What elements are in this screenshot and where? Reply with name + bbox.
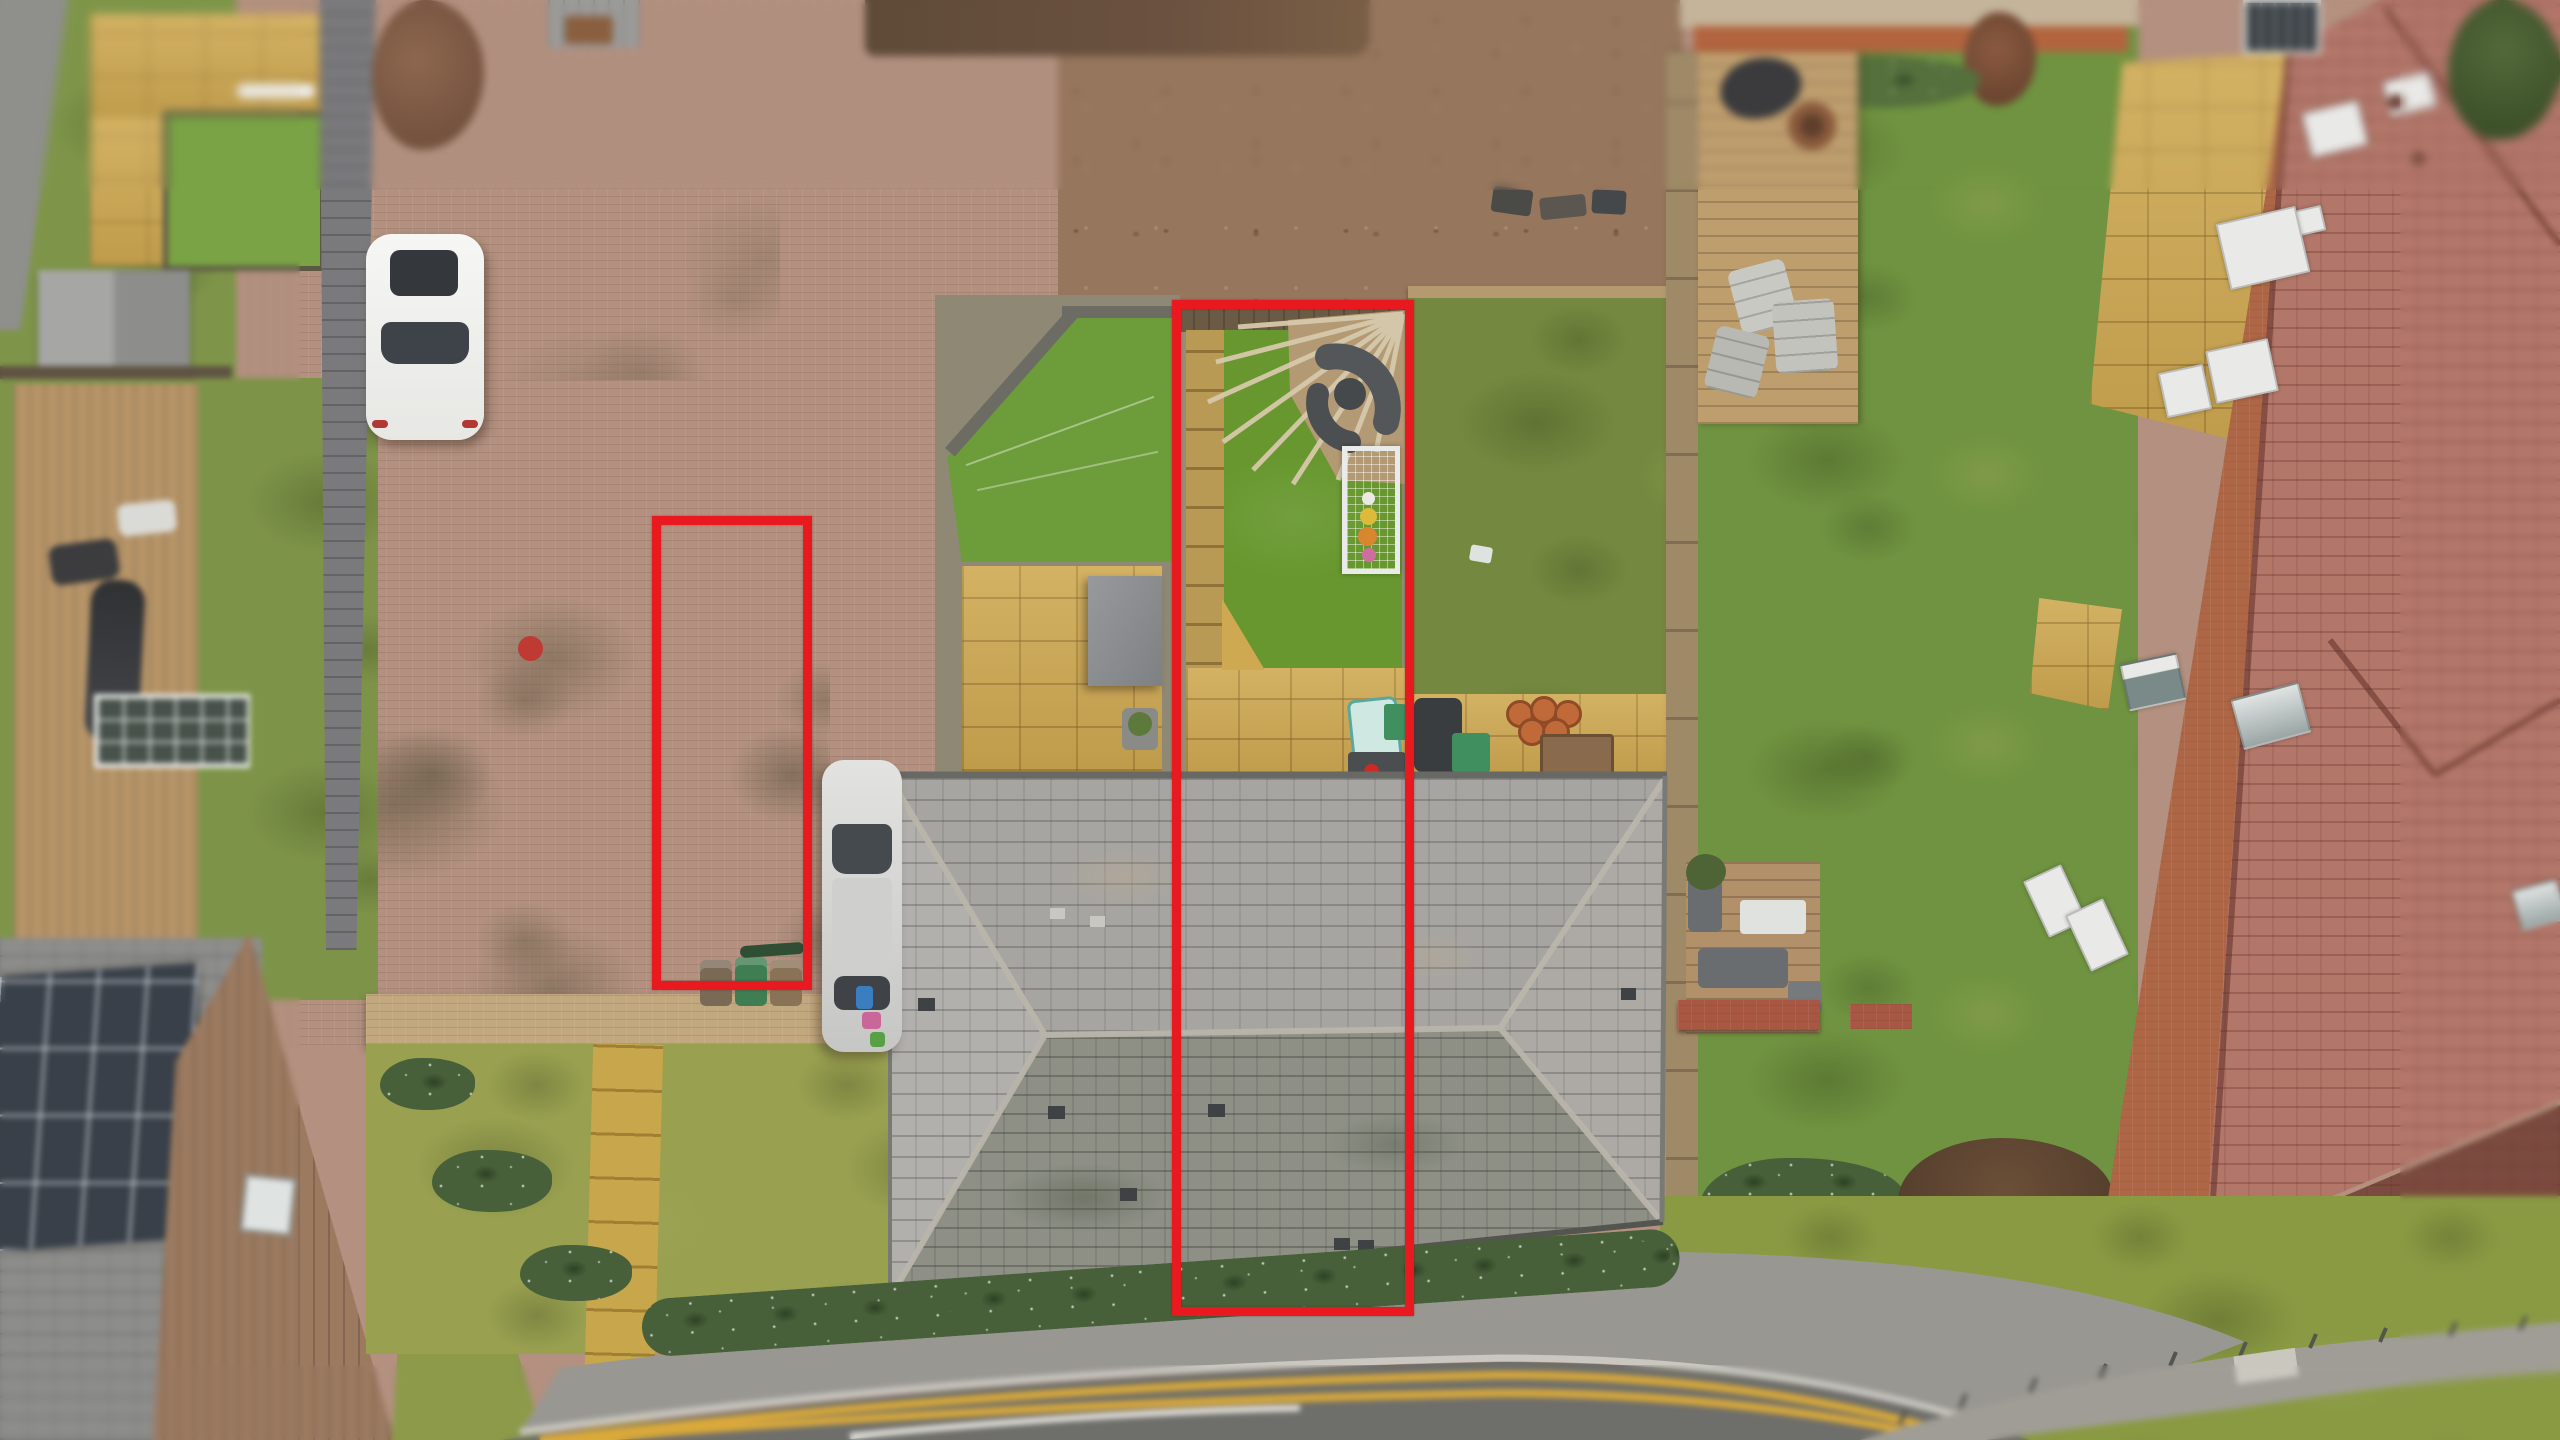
garden-rear-wall <box>1694 26 2128 52</box>
top-left-patio-leg <box>90 118 172 266</box>
white-car-windshield <box>381 322 469 364</box>
patio-table <box>116 499 177 537</box>
toy-pink <box>862 1012 881 1029</box>
conservatory-roof <box>2243 0 2321 54</box>
green-storage-box <box>1452 733 1490 773</box>
toy-green <box>870 1032 885 1047</box>
low-brick-wall <box>1678 1000 1820 1030</box>
silver-car-roof <box>832 878 892 972</box>
top-left-small-lawn <box>168 116 320 266</box>
white-car <box>366 234 484 440</box>
stored-boxes <box>565 16 613 44</box>
gable-dormer-window <box>2120 652 2187 711</box>
window-6 <box>2158 364 2213 419</box>
greenhouse-frame <box>94 694 250 768</box>
roof-vent-1 <box>2388 94 2404 110</box>
roof-vent-2 <box>2412 152 2425 165</box>
right-house-patio-2 <box>2030 598 2122 710</box>
driveway-moss-patches-2 <box>480 120 780 380</box>
toy-blue <box>856 986 873 1009</box>
aerial-photo-canvas <box>0 0 2560 1440</box>
garden-sofa-front <box>1698 948 1788 988</box>
silver-car-windshield <box>832 824 892 874</box>
red-garden-chair <box>518 636 543 661</box>
right-garden-lawn <box>1408 298 1676 703</box>
right-roof-ridge-lines <box>2200 0 2560 1260</box>
property-boundary-outline <box>1172 300 1414 1316</box>
pentagon-fence-top <box>1062 306 1176 318</box>
grey-canopy-shed <box>1088 576 1162 686</box>
garden-debris-3 <box>1591 189 1626 215</box>
fire-pit <box>1788 102 1836 150</box>
far-top-strip <box>1680 0 2138 28</box>
deck-table-white <box>1740 900 1806 934</box>
garden-debris-1 <box>1490 185 1533 216</box>
grey-shed-roof <box>38 270 190 370</box>
front-shrub-1 <box>380 1058 475 1110</box>
sun-lounger-2 <box>1772 298 1839 374</box>
low-brick-wall-2 <box>1850 1004 1912 1029</box>
top-left-patio <box>90 14 322 120</box>
boundary-fence-right <box>1666 52 1698 1248</box>
trampoline-edge-bar <box>237 84 315 98</box>
white-car-sunroof <box>390 250 458 296</box>
top-hedge-shadow <box>865 0 1370 56</box>
white-car-taillight-l <box>372 420 388 428</box>
parking-bay-outline <box>652 516 812 990</box>
white-car-taillight-r <box>462 420 478 428</box>
